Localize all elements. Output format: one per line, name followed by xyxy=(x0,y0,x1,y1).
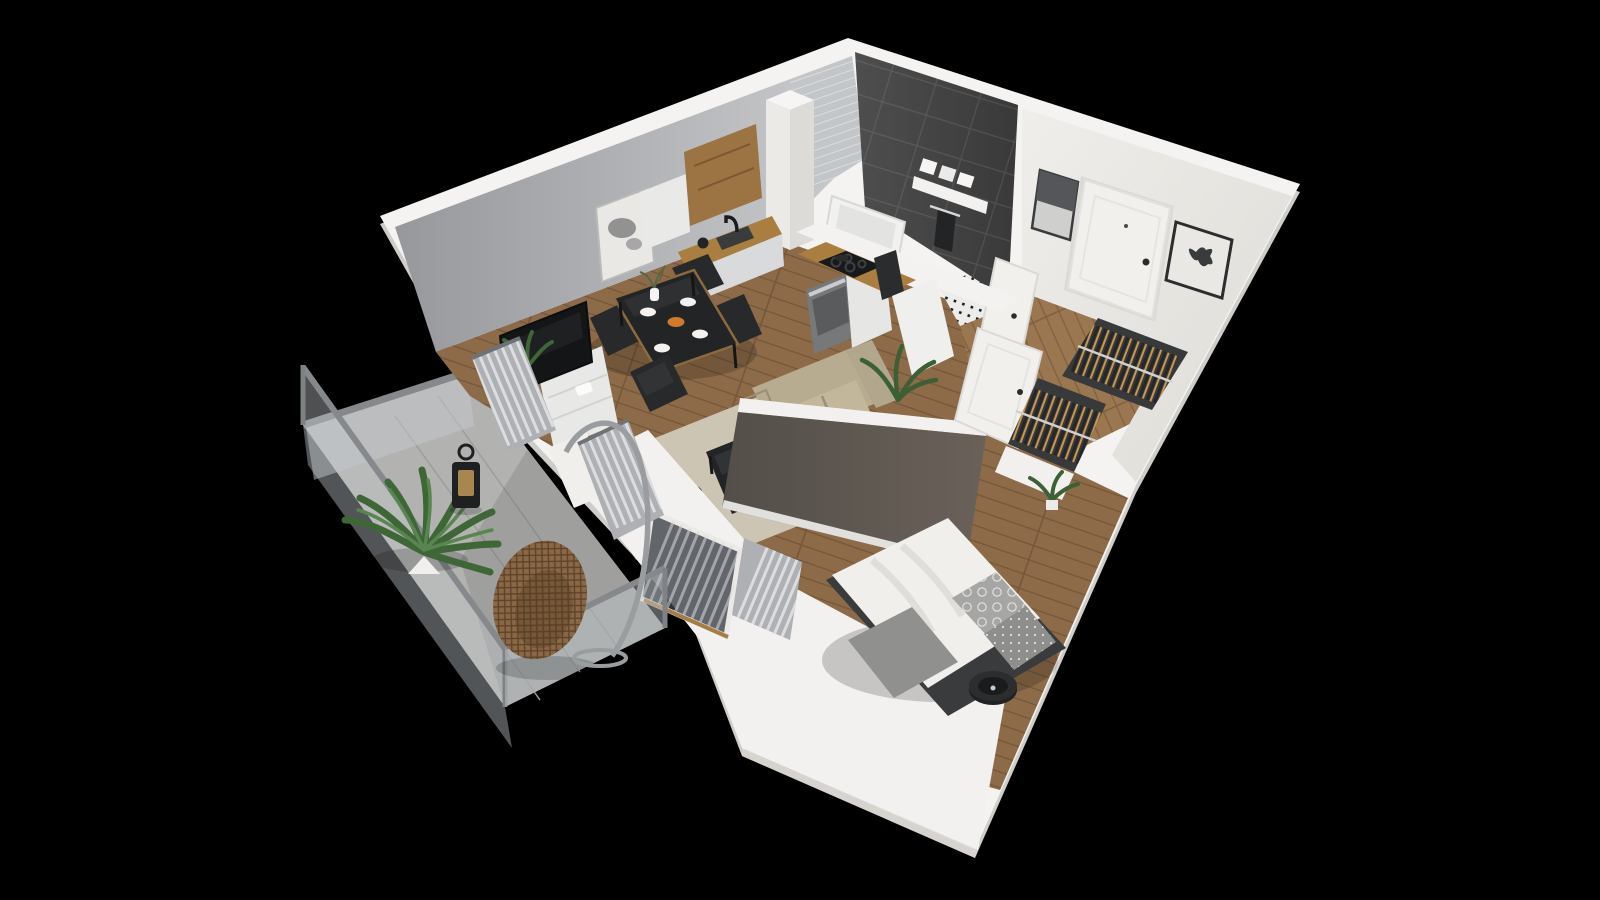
table-knob xyxy=(991,686,996,691)
lantern-glass xyxy=(458,470,474,496)
kettle xyxy=(698,238,709,249)
abstract-art-frame xyxy=(1032,170,1078,240)
egg-chair-shadow xyxy=(496,656,600,680)
vase xyxy=(650,288,659,301)
front-door-handle xyxy=(1143,259,1150,266)
pan-on-cooktop xyxy=(835,255,849,262)
bedside-table xyxy=(969,671,1017,705)
bedroom-door-handle xyxy=(1017,389,1023,395)
floor-plan-render xyxy=(0,0,1600,900)
plant-pot xyxy=(1046,500,1058,510)
bathroom-door-handle xyxy=(1011,313,1017,319)
front-door-peephole xyxy=(1124,224,1128,228)
fruit-bowl xyxy=(668,317,685,327)
floor-plan-canvas xyxy=(0,0,1600,900)
